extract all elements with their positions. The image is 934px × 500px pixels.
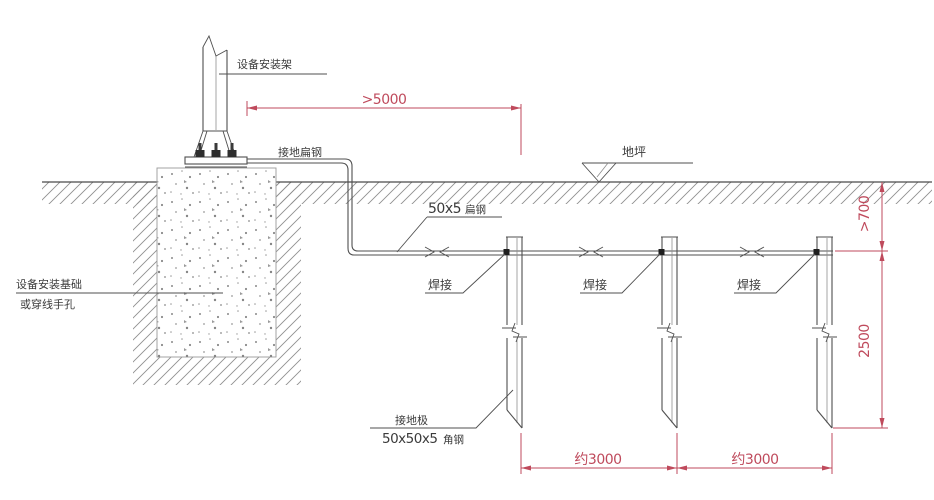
- electrode-length-text: 2500: [857, 324, 873, 358]
- ground-electrode-2: [657, 237, 682, 428]
- electrode-spec-leader: [370, 390, 513, 428]
- bolt-pin: [231, 143, 234, 150]
- burial-depth-text: >700: [857, 196, 873, 232]
- electrode-break-symbol: [657, 323, 682, 342]
- bolt-head: [228, 150, 237, 157]
- flat-steel-spec-leader: [397, 217, 502, 252]
- top-span-dimension-text: >5000: [362, 92, 407, 108]
- callout-flat-steel-spec: 50x5 扁钢: [397, 201, 502, 252]
- bolt-head: [212, 150, 221, 157]
- arrowhead: [667, 466, 677, 471]
- arrowhead-right: [511, 106, 521, 111]
- mast-break-symbol: [203, 36, 227, 56]
- ground-electrode-1: [502, 237, 527, 428]
- equipment-mast: [185, 36, 247, 167]
- equipment-foundation: [157, 168, 276, 357]
- weld-label-1: 焊接: [428, 277, 452, 292]
- conductor-outer-line: [247, 159, 833, 251]
- level-symbol-inner-line: [597, 163, 608, 177]
- callout-mount-frame: 设备安装架: [219, 57, 327, 74]
- conductor-inner-line: [247, 163, 833, 255]
- electrode-tip-bevel: [507, 410, 522, 428]
- ground-electrode-3: [812, 237, 837, 428]
- grounding-flat-steel-label: 接地扁钢: [278, 146, 322, 159]
- ground-hatch-right: [276, 182, 932, 204]
- electrode-tip-bevel: [662, 410, 677, 428]
- electrode-spec-suffix: 角钢: [443, 433, 464, 446]
- dimension-electrode-spacing: 约3000 约3000: [521, 433, 832, 474]
- grounding-installation-diagram: 地坪 设备安装架 接地扁钢 设备安装基础 或穿线手孔 50x5 扁钢 焊接 焊接…: [0, 0, 934, 500]
- arrowhead: [880, 241, 885, 251]
- spacing-dimension-lines: [521, 433, 832, 474]
- arrowhead: [822, 466, 832, 471]
- electrode-tip-bevel: [817, 410, 832, 428]
- bolt-pin: [215, 143, 218, 150]
- weld-label-3: 焊接: [737, 277, 761, 292]
- electrode-spec-number: 50x50x5: [382, 431, 437, 447]
- callout-weld-1: 焊接: [425, 254, 505, 293]
- spacing-dimension-text-1: 约3000: [574, 452, 621, 468]
- arrowhead: [677, 466, 687, 471]
- flat-steel-spec-suffix: 扁钢: [465, 203, 486, 216]
- bolt-pin: [199, 143, 202, 150]
- arrowhead-bottom: [880, 418, 885, 428]
- arrowhead: [880, 251, 885, 261]
- foundation-label-line1: 设备安装基础: [16, 277, 82, 291]
- bolt-head: [196, 150, 205, 157]
- dimension-depth-and-length: >700 2500: [833, 182, 888, 428]
- callout-grounding-flat-steel: 接地扁钢: [278, 146, 322, 159]
- arrowhead: [521, 466, 531, 471]
- base-plate: [185, 157, 247, 164]
- callout-weld-3: 焊接: [734, 254, 815, 293]
- arrowhead-left: [247, 106, 257, 111]
- electrode-break-symbol: [812, 323, 837, 342]
- ground-level-label: 地坪: [622, 145, 646, 159]
- electrode-break-symbol: [502, 323, 527, 342]
- mount-frame-label: 设备安装架: [237, 57, 292, 71]
- level-symbol-triangle: [582, 163, 616, 182]
- ground-level-symbol: 地坪: [582, 145, 693, 182]
- anchor-bolts: [196, 143, 237, 157]
- flat-steel-spec-number: 50x5: [428, 201, 461, 217]
- grounding-conductor: [247, 159, 833, 257]
- callout-weld-2: 焊接: [580, 254, 660, 293]
- spacing-dimension-text-2: 约3000: [731, 452, 778, 468]
- technical-drawing-page: 地坪 设备安装架 接地扁钢 设备安装基础 或穿线手孔 50x5 扁钢 焊接 焊接…: [0, 0, 934, 500]
- electrode-name-label: 接地极: [395, 413, 428, 427]
- callout-electrode-spec: 接地极 50x50x5 角钢: [370, 390, 513, 447]
- foundation-concrete-texture: [157, 168, 276, 357]
- weld-label-2: 焊接: [583, 277, 607, 292]
- foundation-label-line2: 或穿线手孔: [20, 297, 75, 311]
